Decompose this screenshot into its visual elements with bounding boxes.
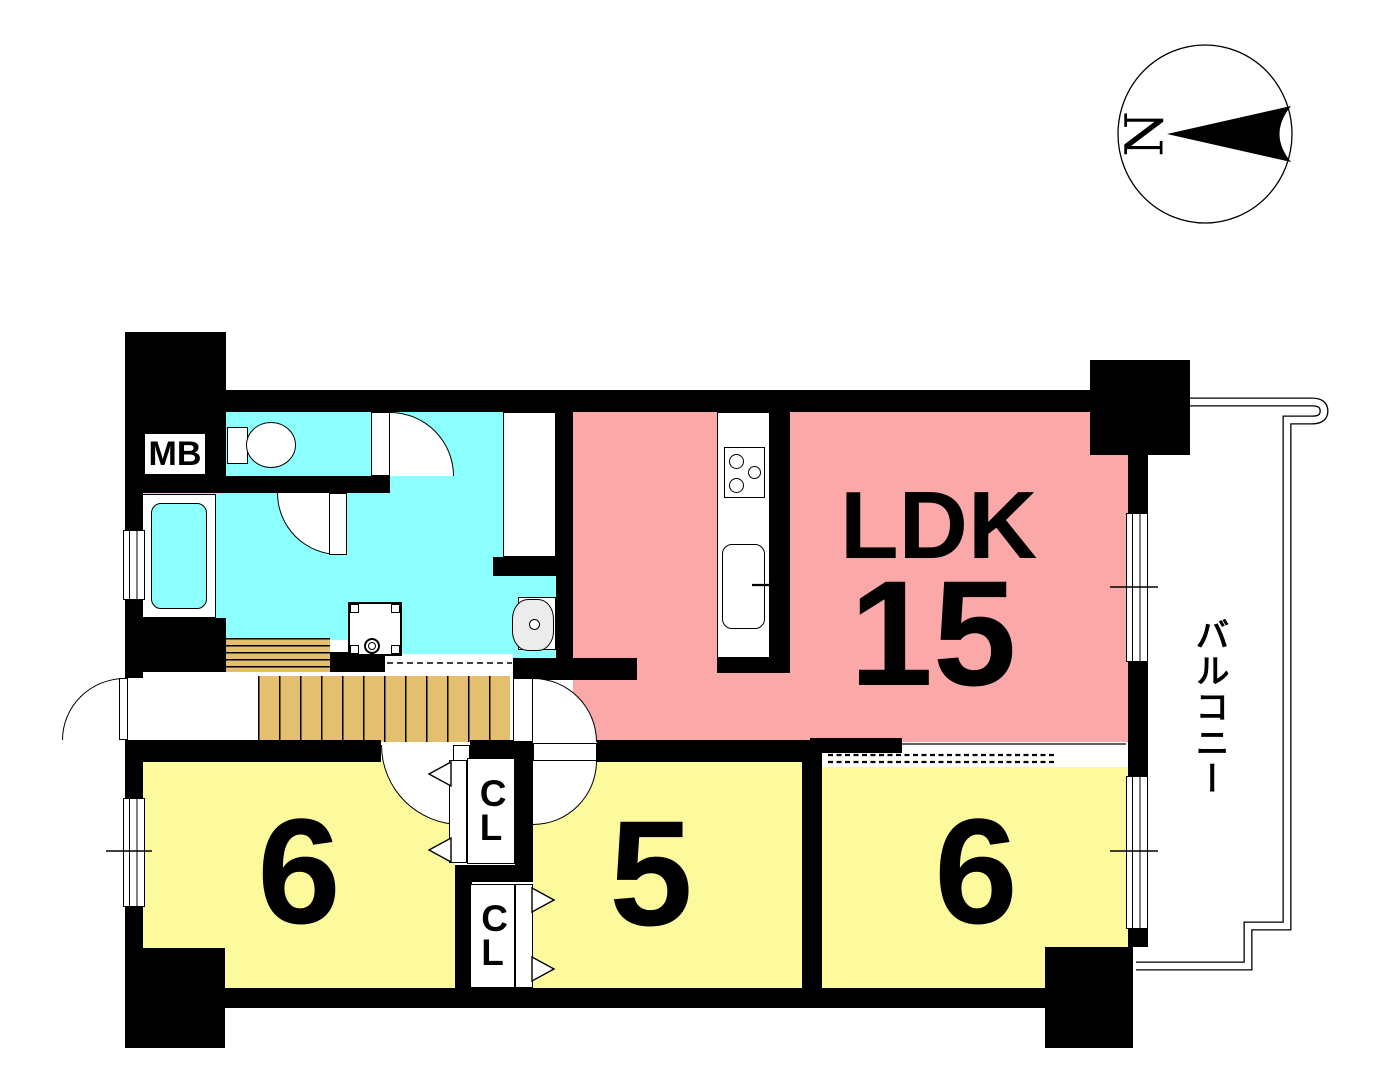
closet-lower-folding-door (515, 884, 533, 988)
meter-box: MB (143, 432, 207, 476)
wall-bedroom5-6 (802, 742, 822, 1008)
bathroom-door-leaf (329, 493, 347, 555)
wall-right-1 (1128, 455, 1148, 513)
closet-lower: CL (470, 884, 515, 988)
compass-north-label: N (1116, 111, 1176, 157)
entrance-door-swing (62, 678, 125, 740)
bathtub (151, 503, 207, 609)
floor-plan-canvas: MB CL CL LDK (0, 0, 1387, 1088)
wall-bottom (205, 988, 1045, 1008)
wall-closet-divider (455, 865, 533, 882)
washroom-hall-opening (385, 654, 513, 672)
wall-ldk-bottom (597, 740, 810, 762)
wall-hall-ldk (513, 658, 637, 680)
column-bottom-right (1045, 947, 1133, 1048)
closet-upper-label: CL (480, 777, 503, 845)
column-top-right (1090, 360, 1190, 455)
stove-burner-2 (748, 466, 761, 479)
compass-icon: N (1116, 45, 1292, 223)
wall-bath-bottom-left (125, 618, 226, 672)
toilet-door-leaf (371, 412, 390, 476)
wall-ldk-bedroom-right-stub (810, 738, 902, 753)
wall-corridor-bottom-left (125, 740, 381, 762)
balcony-railing (1136, 402, 1324, 966)
bedroom-right-size-label: 6 (876, 796, 1076, 946)
hall-door-leaf (513, 678, 533, 742)
toilet-tank (227, 427, 248, 464)
washroom-cabinet (503, 412, 556, 557)
vanity-sink-drain (529, 619, 540, 630)
meter-box-label: MB (149, 435, 202, 474)
closet-upper-folding-door (449, 760, 467, 863)
toilet-bowl (246, 422, 296, 468)
bedroom-middle-door-leaf (533, 743, 597, 761)
wall-toilet-bottom (226, 476, 390, 493)
wall-right-3 (1128, 929, 1148, 947)
wall-right-2 (1128, 662, 1148, 776)
closet-lower-label: CL (481, 902, 504, 970)
compass-needle (1167, 106, 1291, 162)
bedroom-middle-size-label: 5 (556, 798, 746, 948)
washer-pan-pad-tl (350, 604, 359, 613)
wall-left-1 (125, 412, 143, 536)
kitchen-sink (722, 544, 765, 629)
stove-burner-1 (729, 454, 744, 469)
bedroom-left-size-label: 6 (199, 796, 399, 946)
entrance-door-leaf (119, 678, 128, 740)
wall-cabinet-stub (493, 557, 556, 576)
bedroom-left-window (123, 798, 145, 907)
ldk-size-label: 15 (838, 558, 1028, 708)
washer-pan-pad-bl (350, 645, 359, 654)
washer-pan-pad-br (391, 645, 400, 654)
bedroom-right-balcony-window (1126, 776, 1148, 929)
staircase-upper-flight (226, 638, 330, 672)
wall-left-4 (125, 907, 143, 950)
wall-closet-right-upper (515, 758, 533, 865)
ldk-balcony-window (1126, 513, 1148, 662)
bathroom-window (123, 530, 145, 600)
closet-upper: CL (467, 758, 515, 864)
washer-pan-pad-tr (391, 604, 400, 613)
wall-kitchen-stub (770, 412, 790, 655)
wall-washroom-ldk (556, 390, 573, 660)
washer-drain-inner (368, 642, 376, 650)
wall-top (225, 390, 1090, 412)
stove-burner-3 (729, 478, 744, 493)
balcony-label: バルコニー (1192, 612, 1226, 802)
staircase-main-flight (258, 676, 510, 742)
